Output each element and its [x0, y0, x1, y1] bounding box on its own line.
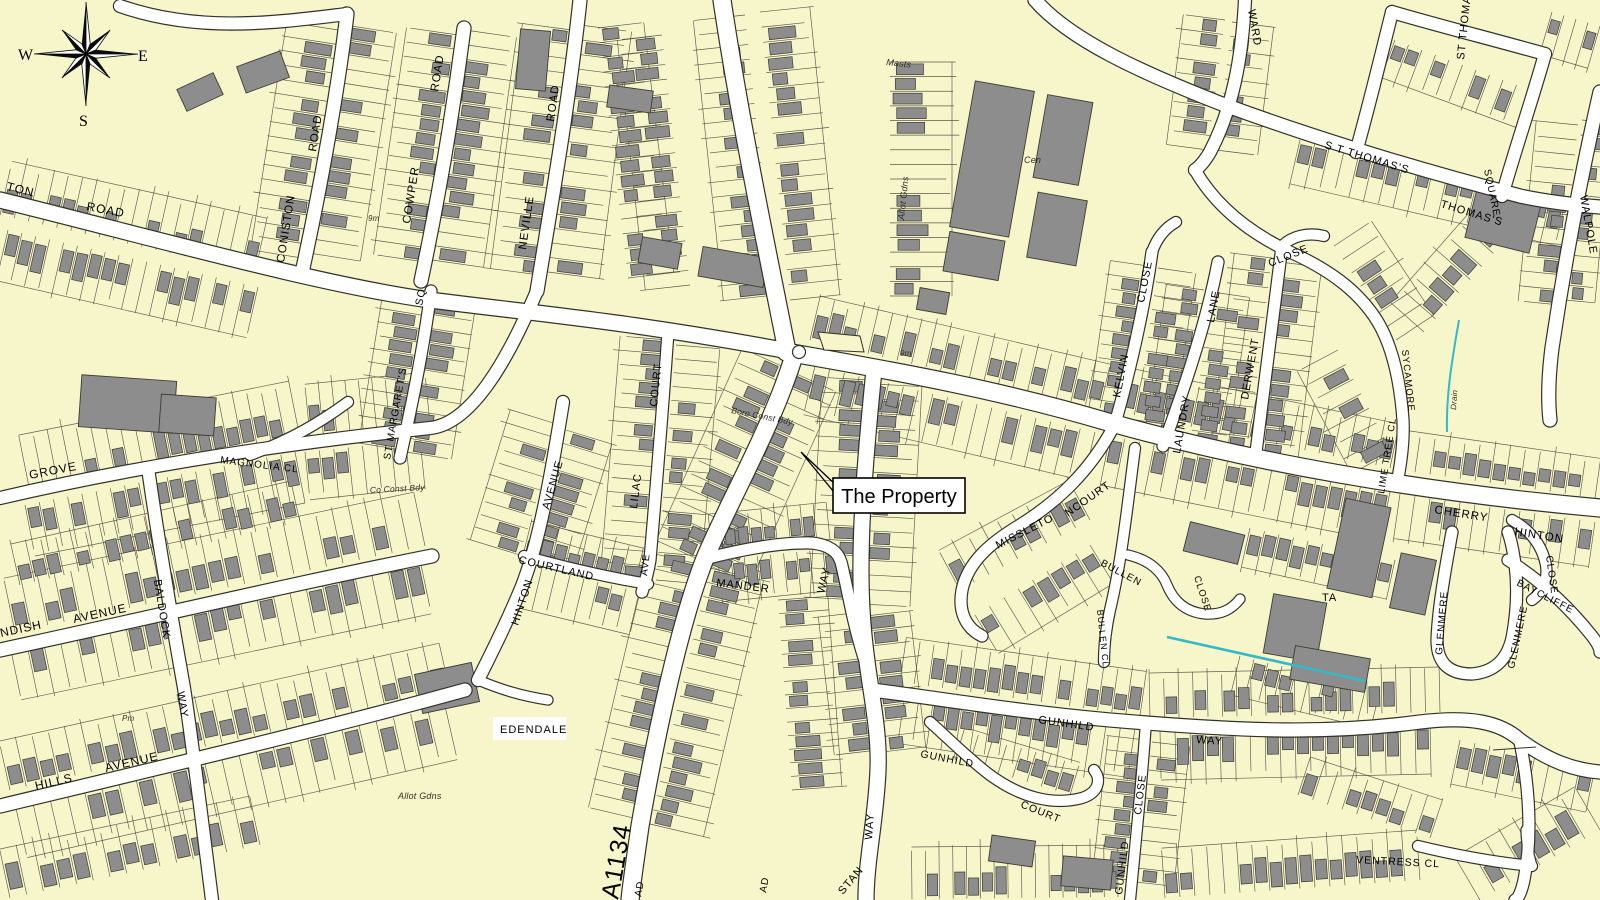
building: [1145, 409, 1165, 422]
building: [800, 776, 825, 788]
building: [785, 193, 813, 207]
building: [415, 132, 435, 145]
building: [1383, 682, 1394, 706]
building: [602, 28, 619, 41]
large-building: [1061, 856, 1113, 890]
building: [1177, 738, 1189, 764]
building: [1086, 689, 1099, 707]
building: [673, 430, 693, 442]
building: [1122, 292, 1136, 304]
building: [776, 87, 795, 100]
building: [1315, 859, 1327, 879]
building: [945, 665, 958, 683]
building: [880, 660, 902, 674]
building: [869, 548, 889, 560]
building: [781, 179, 798, 192]
building: [1200, 34, 1217, 47]
large-building: [1027, 192, 1088, 266]
building: [523, 172, 544, 185]
building: [1538, 468, 1551, 482]
building: [1121, 278, 1139, 291]
building: [889, 736, 904, 749]
building: [421, 104, 441, 117]
building: [1153, 326, 1168, 338]
building: [442, 205, 460, 218]
building: [1238, 316, 1259, 330]
building: [874, 533, 890, 545]
building: [996, 867, 1006, 894]
building: [1538, 244, 1561, 257]
building: [848, 737, 871, 751]
street-label: 9m: [900, 349, 912, 358]
building: [219, 719, 234, 736]
building: [1201, 405, 1218, 418]
building: [874, 630, 898, 644]
building: [1240, 864, 1252, 884]
street-label: WAY: [1196, 734, 1224, 748]
building: [612, 70, 635, 83]
building: [839, 410, 862, 422]
building: [791, 270, 807, 283]
building: [1147, 353, 1167, 366]
building: [640, 52, 657, 65]
building: [1387, 733, 1399, 757]
building: [1247, 272, 1263, 285]
building: [636, 38, 656, 51]
building: [620, 159, 639, 172]
building: [927, 874, 937, 896]
building: [1225, 406, 1246, 419]
building: [777, 132, 805, 146]
building: [1224, 691, 1235, 711]
building: [768, 26, 796, 40]
building: [1187, 105, 1205, 118]
building: [897, 122, 924, 133]
building: [1372, 732, 1384, 751]
large-building: [515, 29, 550, 91]
building: [870, 615, 895, 629]
building: [760, 559, 772, 578]
building: [1112, 333, 1130, 346]
building: [1208, 350, 1223, 362]
building: [1202, 19, 1217, 31]
building: [1267, 695, 1278, 712]
building: [1115, 824, 1131, 836]
building: [1311, 697, 1322, 711]
building: [798, 762, 822, 774]
building: [1018, 718, 1031, 736]
building: [1282, 693, 1293, 712]
street-label: TA: [1322, 592, 1337, 604]
building: [895, 78, 915, 89]
building: [1330, 860, 1342, 880]
building: [1195, 691, 1206, 710]
building: [572, 115, 593, 128]
building: [654, 170, 673, 183]
building: [961, 712, 974, 730]
building: [1143, 381, 1161, 394]
building: [1551, 215, 1564, 227]
street-map-image: TONROADROADCONISTONROADCOWPERROADNEVILLE…: [0, 0, 1600, 900]
building: [793, 682, 808, 693]
building: [795, 722, 810, 733]
building: [1226, 466, 1240, 482]
building: [897, 225, 928, 236]
building: [777, 102, 801, 116]
building: [969, 878, 979, 895]
building: [1279, 294, 1303, 308]
building: [1238, 687, 1249, 708]
building: [1285, 857, 1298, 884]
building: [634, 424, 652, 436]
building: [1204, 392, 1221, 404]
callout-text: The Property: [841, 486, 957, 508]
building: [1568, 474, 1581, 487]
building: [1271, 384, 1290, 397]
building: [336, 452, 349, 473]
building: [793, 239, 812, 252]
building: [1369, 687, 1380, 707]
building: [1357, 733, 1369, 755]
building: [1114, 694, 1127, 710]
building: [615, 144, 639, 158]
large-building: [988, 835, 1035, 867]
building: [1320, 553, 1333, 568]
building: [1157, 759, 1176, 771]
building: [788, 654, 812, 666]
building: [1572, 288, 1584, 300]
building: [786, 600, 807, 612]
building: [1578, 529, 1592, 549]
building: [786, 614, 805, 625]
compass-south-label: S: [79, 113, 88, 130]
building: [973, 669, 986, 689]
building: [559, 216, 577, 229]
building: [955, 872, 965, 894]
building: [1572, 272, 1583, 284]
building: [1030, 675, 1043, 694]
building: [733, 563, 744, 579]
building: [834, 527, 853, 539]
building: [283, 502, 297, 518]
building: [768, 57, 793, 71]
building: [1255, 857, 1268, 882]
building: [1270, 862, 1283, 887]
building: [1147, 800, 1167, 812]
building: [678, 403, 695, 415]
building: [799, 558, 810, 572]
street-label: Drain: [1449, 389, 1459, 410]
building: [1100, 686, 1113, 705]
building: [253, 714, 268, 731]
building: [619, 129, 642, 142]
building: [1208, 364, 1228, 377]
building: [1154, 787, 1168, 799]
building: [454, 148, 471, 161]
building: [570, 144, 587, 157]
building: [1182, 289, 1197, 301]
building: [1448, 456, 1461, 470]
building: [1148, 367, 1163, 379]
building: [874, 445, 898, 457]
building: [1116, 306, 1136, 319]
building: [1508, 467, 1521, 480]
building: [301, 99, 319, 112]
building: [1231, 422, 1247, 435]
large-building: [159, 394, 217, 436]
building: [1051, 875, 1061, 890]
building: [77, 550, 91, 565]
building: [790, 519, 801, 536]
building: [764, 526, 775, 538]
building: [982, 873, 992, 891]
building: [668, 513, 692, 525]
building: [1145, 395, 1161, 407]
building: [1417, 730, 1429, 749]
building: [893, 93, 922, 104]
building: [898, 239, 919, 250]
street-label: WAY: [863, 813, 877, 841]
building: [1180, 873, 1192, 890]
building: [1478, 460, 1492, 478]
building: [624, 189, 638, 201]
building: [788, 640, 813, 652]
building: [577, 101, 597, 114]
building: [769, 41, 792, 54]
building: [1200, 419, 1217, 432]
building: [1285, 475, 1299, 492]
building: [789, 695, 808, 706]
building: [786, 561, 797, 580]
building: [1300, 855, 1313, 882]
building: [617, 115, 635, 128]
building: [1166, 697, 1177, 714]
building: [1114, 809, 1131, 821]
building: [1143, 871, 1157, 883]
building: [1058, 680, 1071, 700]
building: [1222, 737, 1234, 762]
building: [645, 126, 670, 140]
building: [885, 705, 907, 719]
building: [738, 526, 749, 544]
building: [786, 224, 807, 237]
street-label: EDENDALE: [500, 724, 567, 736]
building: [1266, 414, 1284, 427]
building: [653, 185, 671, 198]
building: [1175, 330, 1193, 342]
building: [648, 111, 668, 124]
building: [796, 735, 821, 747]
building: [322, 457, 335, 479]
building: [895, 283, 913, 294]
building: [896, 269, 920, 280]
street-label: Allot Gdns: [397, 791, 442, 801]
large-building: [916, 288, 949, 315]
building: [1165, 873, 1177, 893]
building: [839, 439, 859, 451]
building: [308, 458, 320, 473]
building: [780, 163, 799, 176]
building: [669, 472, 682, 483]
street-label: Cen: [1024, 155, 1041, 165]
compass-west-label: W: [18, 47, 34, 64]
building: [420, 118, 440, 131]
building: [552, 29, 568, 42]
building: [897, 108, 927, 119]
building: [1193, 62, 1216, 75]
building: [787, 208, 814, 222]
building: [879, 430, 900, 442]
building: [1493, 464, 1506, 481]
building: [1205, 378, 1221, 390]
building: [1181, 302, 1198, 314]
building: [842, 707, 865, 721]
street-label: 9m: [368, 214, 380, 223]
building: [1522, 472, 1535, 486]
building: [639, 439, 654, 451]
building: [794, 749, 822, 761]
building: [838, 661, 862, 675]
building: [1544, 260, 1558, 272]
building: [651, 155, 670, 168]
mini-roundabout: [793, 346, 806, 359]
building: [621, 174, 645, 188]
compass-east-label: E: [138, 48, 148, 65]
building: [661, 229, 677, 242]
building: [671, 458, 686, 469]
building: [636, 67, 659, 80]
building: [876, 415, 896, 427]
building: [608, 57, 624, 70]
building: [655, 214, 677, 227]
building: [959, 667, 972, 688]
building: [1265, 429, 1285, 442]
building: [1175, 344, 1189, 356]
building: [853, 722, 868, 735]
building: [464, 76, 480, 89]
building: [1250, 257, 1265, 270]
building: [668, 527, 689, 539]
building: [772, 73, 788, 86]
street-label: Pm: [122, 714, 135, 723]
building: [803, 517, 815, 537]
building: [1553, 471, 1566, 488]
building: [1340, 688, 1351, 711]
building: [1124, 768, 1137, 780]
map-viewport[interactable]: TONROADROADCONISTONROADCOWPERROADNEVILLE…: [0, 0, 1600, 900]
building: [1433, 451, 1446, 467]
